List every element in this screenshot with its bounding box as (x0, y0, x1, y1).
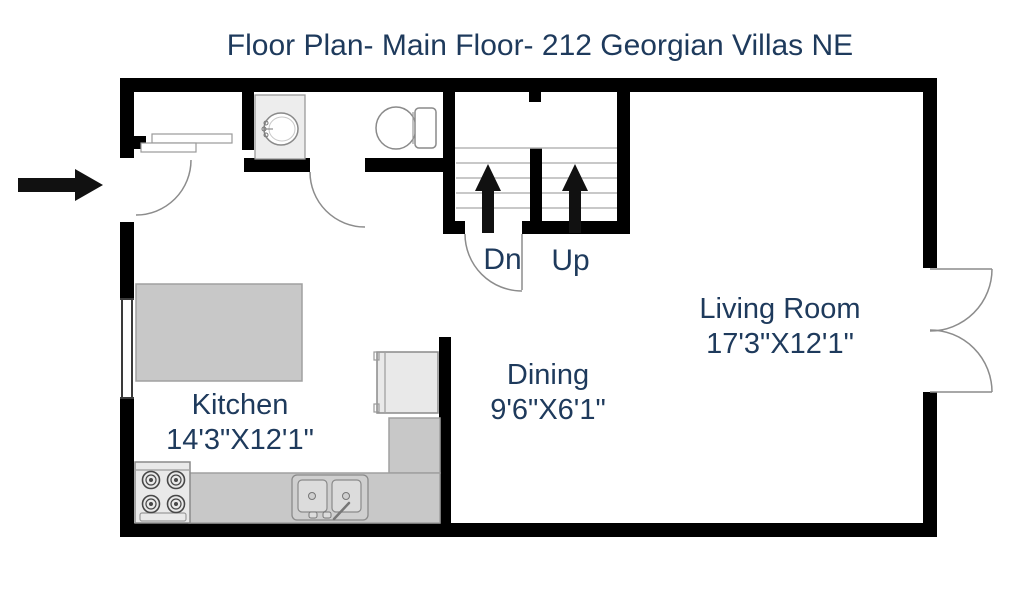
dining-label-group: Dining 9'6"X6'1" (448, 358, 648, 428)
toilet-bowl (376, 107, 416, 149)
floor-plan-page: Floor Plan- Main Floor- 212 Georgian Vil… (0, 0, 1024, 616)
kitchen-label-group: Kitchen 14'3"X12'1" (140, 388, 340, 458)
faucet-handle-right (323, 512, 331, 518)
window-pane-inner (131, 298, 133, 399)
bathroom-vanity (255, 95, 305, 159)
stairwell-bottom-wall-left (443, 221, 465, 234)
dining-dimensions: 9'6"X6'1" (448, 393, 648, 428)
bottom-wall (120, 523, 937, 537)
top-wall (120, 78, 937, 92)
stairwell-left-wall (443, 90, 455, 234)
stair-divider-stub (529, 90, 541, 102)
kitchen-sink (292, 475, 368, 520)
kitchen-name: Kitchen (140, 388, 340, 423)
closet-sliding-door-upper (152, 134, 232, 143)
entry-arrow-icon (18, 169, 103, 201)
patio-door-arc-bottom (930, 330, 992, 392)
entry-door-arc (136, 160, 191, 215)
stairs-down-arrow-icon (475, 164, 501, 233)
window-pane-outer (121, 298, 123, 399)
kitchen-island-counter (136, 284, 302, 381)
kitchen-window (120, 298, 134, 399)
stove-body (135, 462, 190, 523)
kitchen-dimensions: 14'3"X12'1" (140, 423, 340, 458)
left-wall-upper (120, 78, 134, 158)
bathroom-door-arc (310, 172, 365, 227)
closet-sliding-door-lower (141, 143, 196, 152)
bathroom-wall-right (365, 158, 443, 172)
living-room-name: Living Room (655, 292, 905, 327)
right-wall-upper (923, 78, 937, 268)
living-room-label-group: Living Room 17'3"X12'1" (655, 292, 905, 362)
living-room-dimensions: 17'3"X12'1" (655, 327, 905, 362)
sink-drain-left (309, 493, 316, 500)
right-wall-lower (923, 392, 937, 537)
left-wall-lower (120, 399, 134, 537)
refrigerator (374, 352, 438, 413)
stairs-down-label: Dn (480, 243, 525, 277)
faucet-handle-left (309, 512, 317, 518)
bathroom-wall-left (244, 158, 310, 172)
plan-title: Floor Plan- Main Floor- 212 Georgian Vil… (28, 29, 1024, 63)
stair-divider-wall (530, 148, 542, 234)
stairwell-right-wall (617, 90, 630, 234)
sink-drain-right (343, 493, 350, 500)
refrigerator-body (377, 352, 438, 413)
closet-wall (242, 90, 254, 150)
left-wall-middle (120, 222, 134, 298)
dining-name: Dining (448, 358, 648, 393)
toilet-tank (415, 108, 436, 148)
patio-door-arc-top (930, 269, 992, 331)
stairs-up-label: Up (548, 244, 593, 278)
kitchen-side-counter (389, 418, 440, 473)
toilet (376, 107, 436, 149)
stove (135, 462, 190, 523)
